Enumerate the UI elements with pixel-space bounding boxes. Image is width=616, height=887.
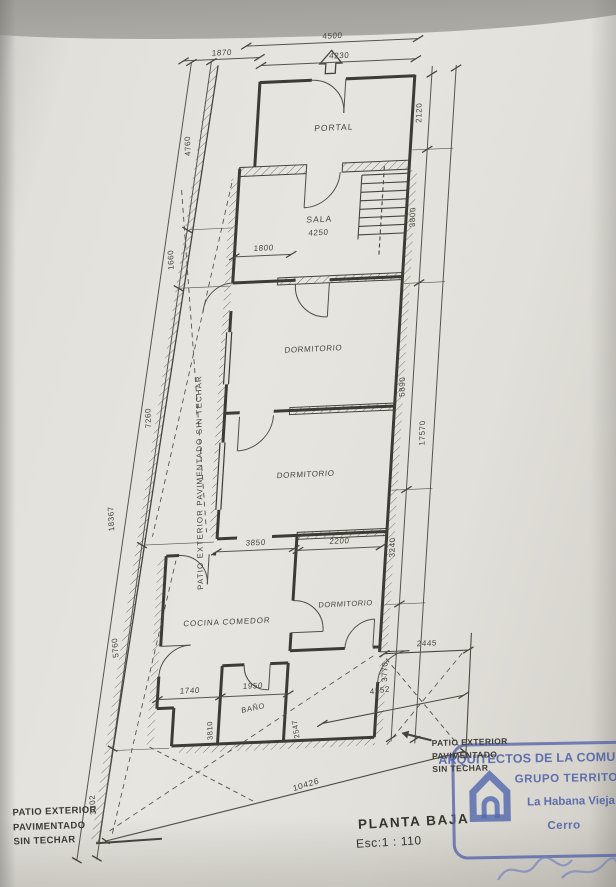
dim-5760: 5760 <box>110 637 121 659</box>
dim-2120: 2120 <box>414 102 424 123</box>
room-label-portal: PORTAL <box>314 122 354 134</box>
room-label-cocina: COCINA COMEDOR <box>183 616 271 629</box>
dim-5890: 5890 <box>397 376 407 397</box>
room-label-dormitorio-1: DORMITORIO <box>284 343 342 355</box>
room-label-bano: BAÑO <box>241 701 266 715</box>
dim-2445: 2445 <box>417 638 438 648</box>
stamp-district: Cerro <box>547 820 580 833</box>
stamp-municipality: La Habana Vieja <box>527 795 615 809</box>
dim-4250: 4250 <box>308 228 329 238</box>
dim-3770: 3770 <box>380 661 390 682</box>
photo-left-shadow <box>0 0 16 887</box>
dim-4252: 4252 <box>370 684 391 696</box>
patio-annotation-near-stamp: PATIO EXTERIOR PAVIMENTADO SIN TECHAR <box>432 735 509 775</box>
dim-2547: 2547 <box>290 719 302 740</box>
patio-side-label: PATIO EXTERIOR PAVIMENTADO SIN TECHAR <box>194 375 205 591</box>
dim-3810: 3810 <box>205 720 214 740</box>
signature-scribble <box>492 850 616 887</box>
dim-3800: 3800 <box>408 207 418 228</box>
dim-3850: 3850 <box>245 538 266 548</box>
dim-4230: 4230 <box>329 51 350 61</box>
room-label-dormitorio-2: DORMITORIO <box>277 469 335 481</box>
house-icon <box>466 768 513 825</box>
room-label-dormitorio-3: DORMITORIO <box>318 598 373 609</box>
dim-1660: 1660 <box>166 249 176 270</box>
stamp-group: GRUPO TERRITORIAL <box>515 771 616 785</box>
patio-annotation-line: SIN TECHAR <box>13 833 98 851</box>
dim-3240: 3240 <box>388 537 398 558</box>
patio-annotation-line: SIN TECHAR <box>432 761 508 776</box>
patio-annotation-line: PAVIMENTADO <box>432 748 508 763</box>
stairs <box>357 165 409 257</box>
dim-1740: 1740 <box>179 686 200 696</box>
dim-17570: 17570 <box>418 420 428 446</box>
dim-1800: 1800 <box>253 243 274 253</box>
dim-7260: 7260 <box>144 407 154 428</box>
dim-4760: 4760 <box>183 135 193 156</box>
room-label-sala: SALA <box>306 214 332 225</box>
dim-2200: 2200 <box>329 536 350 546</box>
dim-4500: 4500 <box>322 31 343 41</box>
plan-labels: PORTAL SALA 4250 DORMITORIO DORMITORIO D… <box>86 25 474 816</box>
dim-1870: 1870 <box>212 48 233 58</box>
patio-annotation-bottom-left: PATIO EXTERIOR PAVIMENTADO SIN TECHAR <box>12 804 98 851</box>
dim-18367: 18367 <box>106 506 116 532</box>
dim-1950: 1950 <box>243 681 264 691</box>
